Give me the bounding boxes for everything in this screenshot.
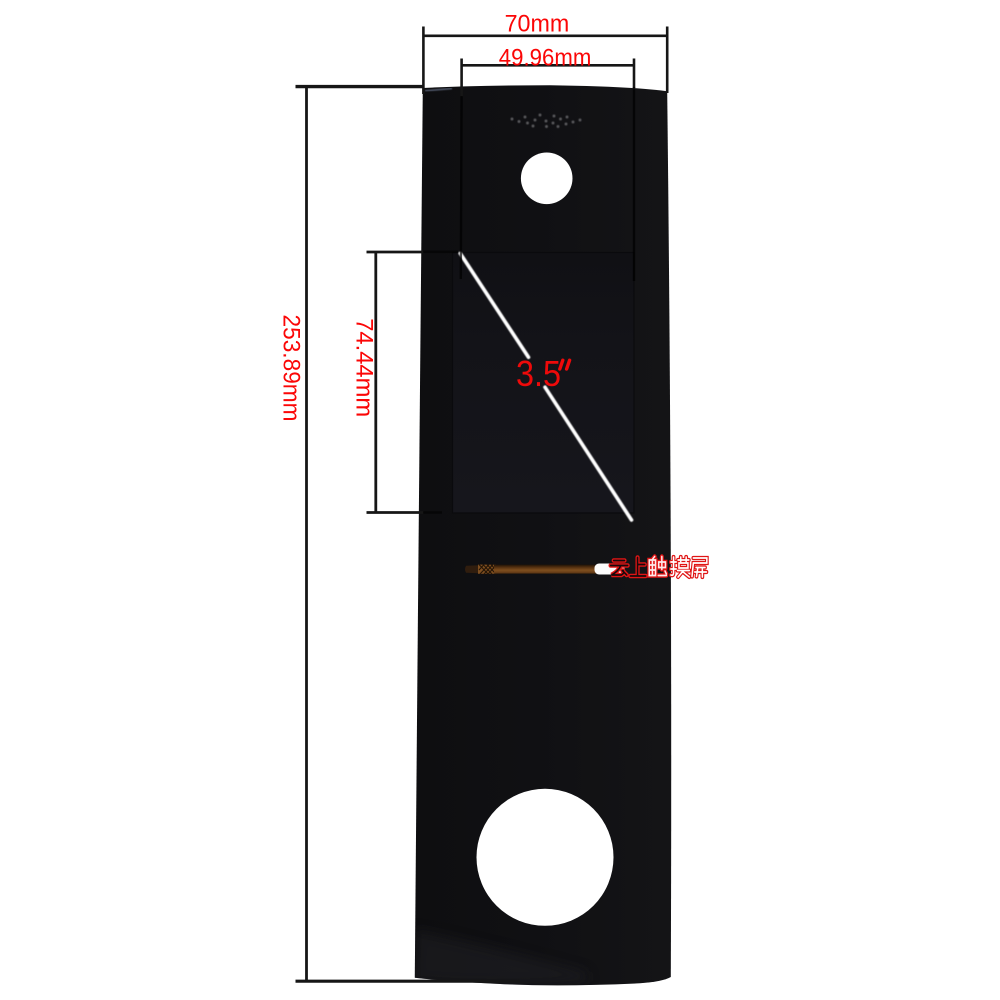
svg-text:3.5: 3.5	[516, 355, 561, 395]
svg-text:70mm: 70mm	[505, 11, 570, 37]
svg-text:253.89mm: 253.89mm	[278, 315, 305, 422]
svg-text:49.96mm: 49.96mm	[499, 44, 592, 71]
svg-text:74.44mm: 74.44mm	[350, 318, 377, 417]
